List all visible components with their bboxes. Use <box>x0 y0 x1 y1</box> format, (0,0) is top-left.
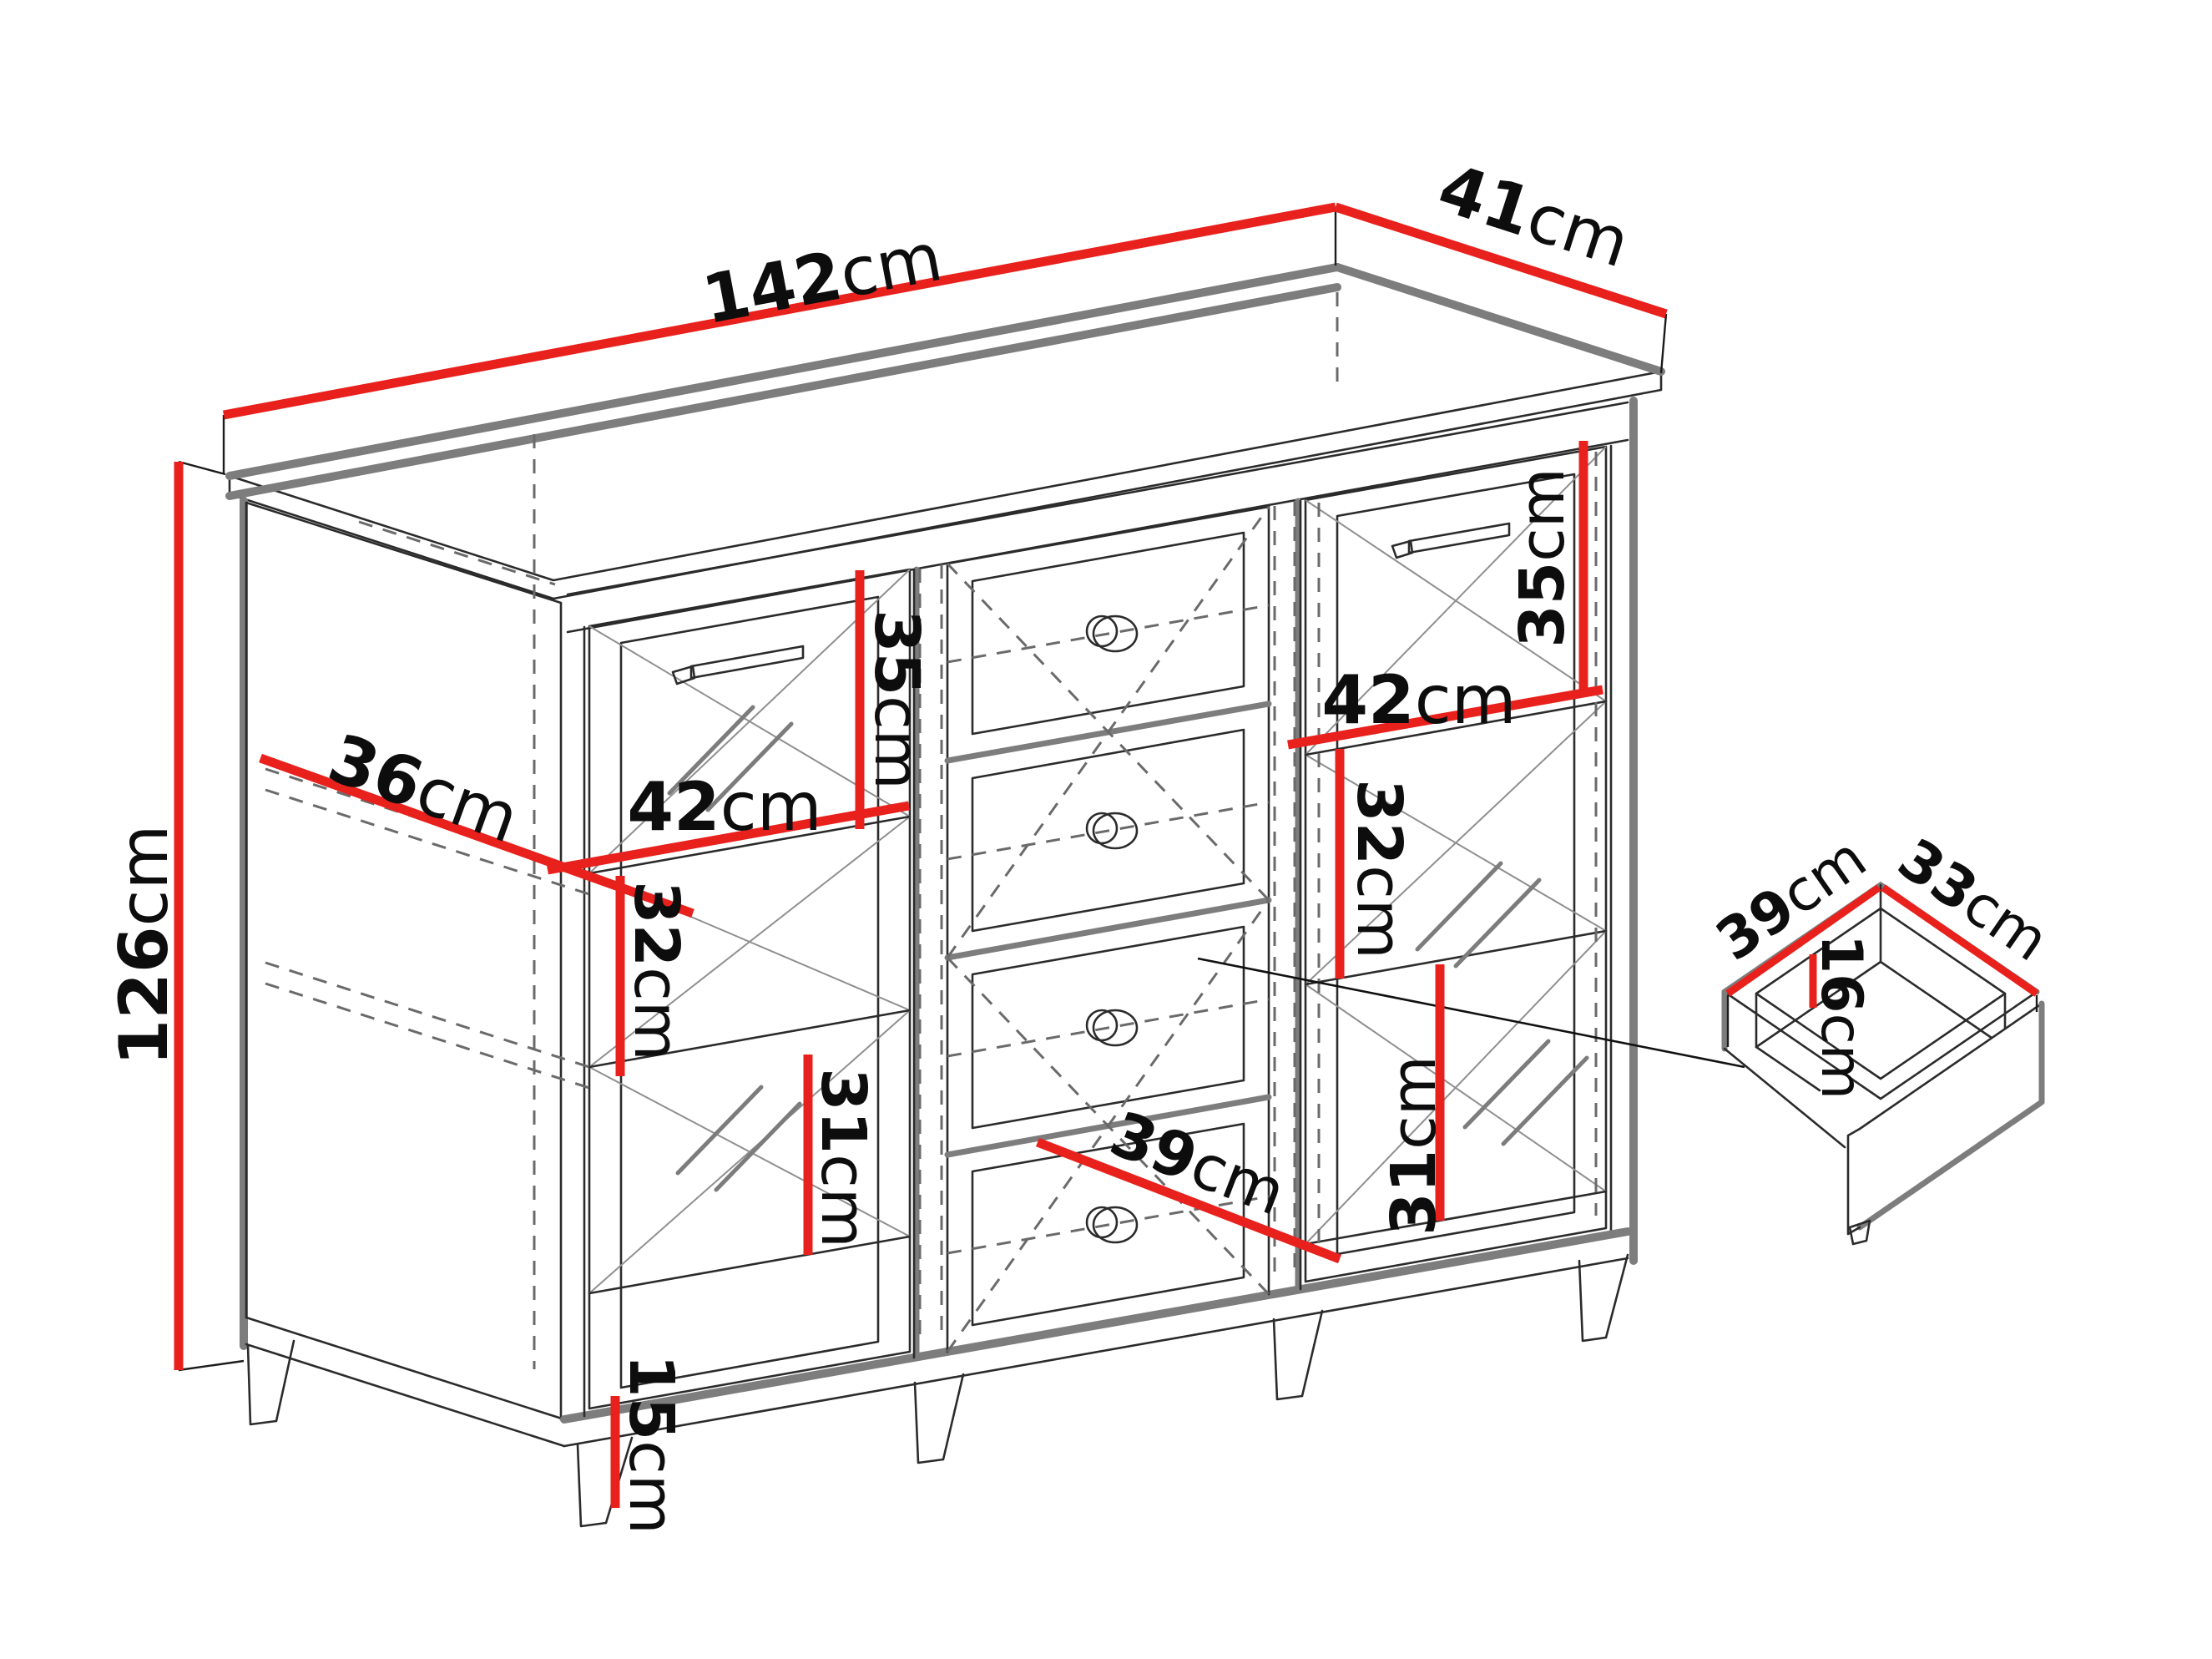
dim-label-left-bottom-height: 31cm <box>807 1068 879 1248</box>
dim-label-right-top-height: 35cm <box>1507 468 1578 648</box>
dim-label-left-top-height: 35cm <box>861 609 932 790</box>
dim-label-right-middle-height: 32cm <box>1343 779 1415 959</box>
dim-label-cabinet-height: 126cm <box>105 825 183 1066</box>
dim-label-detail-height: 16cm <box>1809 934 1875 1100</box>
dim-label-left-door-width: 42cm <box>627 768 821 846</box>
sideboard-dimension-diagram: 142cm 41cm 126cm 36cm 35cm 42cm 32cm 31c… <box>0 0 2212 1659</box>
dim-label-left-middle-height: 32cm <box>620 881 692 1061</box>
dim-label-leg-height: 15cm <box>615 1354 687 1535</box>
diagram-canvas: 142cm 41cm 126cm 36cm 35cm 42cm 32cm 31c… <box>0 0 2212 1659</box>
dim-label-right-door-width: 42cm <box>1321 661 1516 739</box>
dim-label-right-bottom-height: 31cm <box>1378 1055 1450 1236</box>
